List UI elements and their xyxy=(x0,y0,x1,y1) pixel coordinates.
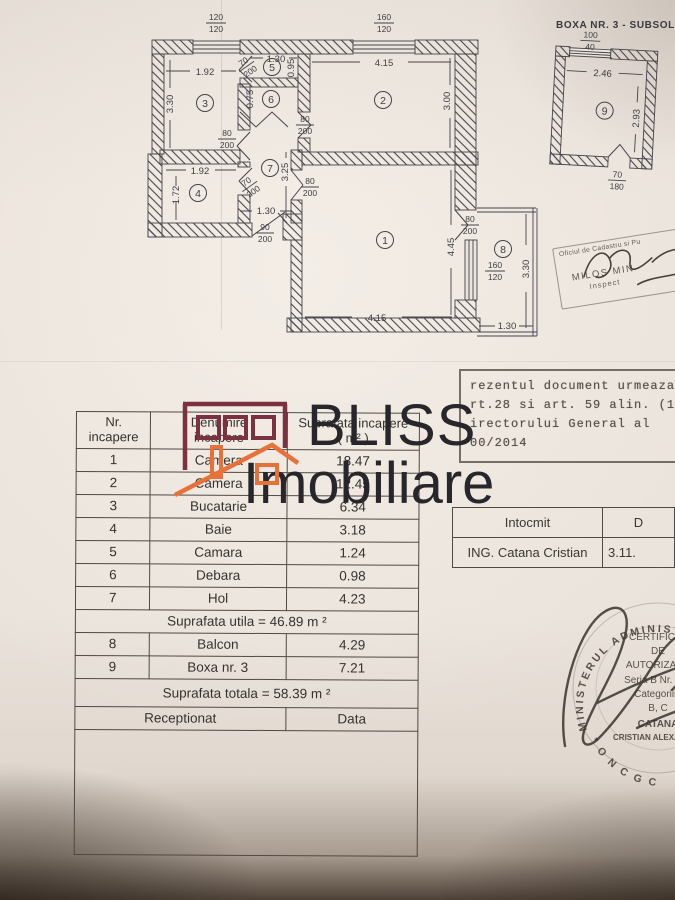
wall-segment xyxy=(291,200,302,223)
wall-segment xyxy=(160,150,240,164)
dim-balcony-height: 3.30 xyxy=(521,260,532,279)
data-cell: Data xyxy=(286,708,418,732)
cell-area: 12.45 xyxy=(287,473,419,497)
wall-segment xyxy=(550,56,566,164)
stamp-certificat: CERTIFICAT xyxy=(629,632,675,643)
svg-text:4: 4 xyxy=(195,188,201,200)
svg-text:80: 80 xyxy=(305,176,315,186)
boxa-unit: 10040 2.46 2.93 9 70180 xyxy=(549,28,659,193)
floor-plan-drawing: 1.92 3.30 1.30 0.95 0.75 4.15 3.00 1.92 … xyxy=(0,0,675,365)
dim-boxa-width: 2.46 xyxy=(593,68,612,80)
dim-room2-height: 3.00 xyxy=(442,92,453,111)
wall-segment xyxy=(415,40,478,54)
wall-segment xyxy=(550,154,608,167)
intocmit-header-row: Intocmit D xyxy=(453,508,675,538)
wall-segment xyxy=(291,150,302,170)
receptionat-cell: Receptionat xyxy=(75,706,286,730)
cell-nr: 4 xyxy=(76,518,151,541)
svg-text:90: 90 xyxy=(260,222,270,232)
reception-row: Receptionat Data xyxy=(75,706,418,731)
dim-room2-width: 4.15 xyxy=(375,58,394,69)
cell-name: Baie xyxy=(150,518,286,542)
svg-text:80: 80 xyxy=(465,214,475,224)
stamp-seria: Seria B Nr. 685 xyxy=(624,675,675,686)
wall-segment xyxy=(148,223,252,237)
window xyxy=(465,240,477,300)
cell-nr: 2 xyxy=(76,472,151,495)
svg-text:7: 7 xyxy=(267,163,273,175)
table-row: 8Balcon4.29 xyxy=(75,632,418,657)
svg-text:40: 40 xyxy=(585,42,595,52)
cell-area: 0.98 xyxy=(286,565,418,589)
wall-segment xyxy=(455,300,476,318)
typed-line3: irectorului General al xyxy=(470,415,675,434)
svg-text:5: 5 xyxy=(269,62,275,74)
svg-text:160: 160 xyxy=(377,12,391,22)
window xyxy=(353,41,415,53)
door-size-label: 90200 xyxy=(256,222,274,244)
window xyxy=(193,41,240,53)
dimension-lines xyxy=(166,58,533,328)
wall-segment xyxy=(455,54,476,165)
dim-boxa-height: 2.93 xyxy=(631,109,643,128)
cell-area: 6.34 xyxy=(287,496,419,520)
cell-area: 4.23 xyxy=(286,588,418,612)
intocmit-label: Intocmit xyxy=(453,508,603,538)
cell-nr: 3 xyxy=(76,495,151,518)
wall-segment xyxy=(152,54,164,154)
typed-line1: rezentul document urmeaza xyxy=(470,377,675,396)
door-size-label: 80200 xyxy=(296,114,314,136)
svg-text:80: 80 xyxy=(300,114,310,124)
svg-text:2: 2 xyxy=(380,95,386,107)
svg-text:120: 120 xyxy=(377,24,391,34)
total-row: Suprafata totala = 58.39 m ² xyxy=(75,678,418,708)
cell-nr: 9 xyxy=(75,655,150,678)
svg-text:1: 1 xyxy=(382,235,388,247)
cell-nr: 8 xyxy=(75,632,150,655)
dim-room3-width: 1.92 xyxy=(196,67,215,78)
door-size-label: 70180 xyxy=(607,169,626,192)
empty-cell xyxy=(74,729,418,856)
stamp-ring-bottom-text: * O N C G C xyxy=(588,736,659,789)
wall-segment xyxy=(302,152,478,165)
cell-name: Camara xyxy=(150,541,286,565)
stamp-categoriile: Categoriile xyxy=(634,689,675,700)
table-row: 4Baie3.18 xyxy=(76,518,419,543)
door-size-label: 80200 xyxy=(461,214,479,236)
header-suprafata: Suprafata incapere( m² ) xyxy=(287,413,420,451)
table-row: 6Debara0.98 xyxy=(76,564,419,589)
windows xyxy=(193,41,477,300)
cell-nr: 5 xyxy=(76,541,151,564)
scanned-document-page: 1.92 3.30 1.30 0.95 0.75 4.15 3.00 1.92 … xyxy=(0,0,675,900)
wall-segment xyxy=(610,49,657,61)
empty-signature-area xyxy=(74,729,418,856)
table-row: 3Bucatarie6.34 xyxy=(76,495,419,520)
svg-text:200: 200 xyxy=(258,234,272,244)
certification-round-stamp: MINISTERUL ADMINISTRATIEI * O N C G C CE… xyxy=(535,578,675,803)
door-size-label: 80200 xyxy=(218,128,236,150)
svg-text:3: 3 xyxy=(202,98,208,110)
svg-text:120: 120 xyxy=(209,24,223,34)
svg-text:200: 200 xyxy=(298,126,312,136)
boxa-title: BOXA NR. 3 - SUBSOL xyxy=(556,20,675,31)
cell-name: Bucatarie xyxy=(150,495,286,519)
wall-segment xyxy=(240,40,353,54)
table-row: 9Boxa nr. 37.21 xyxy=(75,655,418,680)
wall-segment xyxy=(555,46,570,57)
svg-text:120: 120 xyxy=(209,12,223,22)
typed-line2: rt.28 si art. 59 alin. (1) xyxy=(470,396,675,415)
svg-text:160: 160 xyxy=(488,260,502,270)
cell-name: Camera xyxy=(151,449,287,473)
intocmit-table: Intocmit D ING. Catana Cristian 3.11. xyxy=(452,507,675,568)
wall-segment xyxy=(238,195,250,223)
wall-segment xyxy=(298,54,310,112)
cell-name: Debara xyxy=(150,564,286,588)
cell-name: Camera xyxy=(151,472,287,496)
door-room1 xyxy=(291,170,303,200)
typed-line4: 00/2014 xyxy=(470,434,675,453)
dim-room5-height: 0.95 xyxy=(286,59,297,78)
apartment-walls xyxy=(148,40,480,332)
window-size-label: 160120 xyxy=(374,12,394,34)
stamp-cristian-alexandru: CRISTIAN ALEXANDRU xyxy=(613,733,675,742)
wall-segment xyxy=(238,162,250,167)
intocmit-date: 3.11. xyxy=(602,538,674,568)
cell-nr: 6 xyxy=(76,564,151,587)
subtotal-utila: Suprafata utila = 46.89 m ² xyxy=(75,609,418,634)
table-header-row: Nr.incapere Denumireincapere Suprafata i… xyxy=(76,412,419,451)
engineer-name: ING. Catana Cristian xyxy=(453,538,603,568)
door-boxa xyxy=(608,144,631,158)
cell-name: Boxa nr. 3 xyxy=(150,656,286,680)
svg-text:6: 6 xyxy=(268,94,274,106)
table-row: 2Camera12.45 xyxy=(76,472,419,497)
cell-nr: 1 xyxy=(76,449,151,472)
cell-area: 18.47 xyxy=(287,450,419,474)
table-row: 7Hol4.23 xyxy=(75,587,418,612)
door-size-label: 70200 xyxy=(233,52,260,80)
window-size-label: 160120 xyxy=(485,260,505,282)
table-row: 5Camara1.24 xyxy=(76,541,419,566)
svg-text:180: 180 xyxy=(609,181,624,192)
wall-segment xyxy=(152,40,193,54)
svg-text:80: 80 xyxy=(222,128,232,138)
door-size-label: 80200 xyxy=(301,176,319,198)
cell-nr: 7 xyxy=(75,587,150,610)
svg-text:8: 8 xyxy=(500,244,506,256)
dim-room4-width: 1.92 xyxy=(191,166,210,177)
typed-annotation-stamp: rezentul document urmeaza rt.28 si art. … xyxy=(459,369,675,463)
svg-text:200: 200 xyxy=(303,188,317,198)
cell-area: 3.18 xyxy=(286,519,418,543)
dim-room4-height: 1.72 xyxy=(171,186,182,205)
header-denumire: Denumireincapere xyxy=(151,412,287,450)
svg-text:9: 9 xyxy=(601,105,608,117)
cell-area: 7.21 xyxy=(286,657,418,681)
cell-area: 4.29 xyxy=(286,634,418,658)
stamp-bc: B, C xyxy=(648,703,667,714)
data-column-label: D xyxy=(602,508,674,538)
total-suprafata: Suprafata totala = 58.39 m ² xyxy=(75,678,418,708)
cell-area: 1.24 xyxy=(286,542,418,566)
dim-room3-height: 3.30 xyxy=(165,95,176,114)
header-nr-incapere: Nr.incapere xyxy=(76,412,151,449)
svg-text:120: 120 xyxy=(488,272,502,282)
svg-text:100: 100 xyxy=(583,29,598,40)
dim-room1-height: 4.45 xyxy=(446,238,457,257)
intocmit-value-row: ING. Catana Cristian 3.11. xyxy=(453,538,675,568)
wall-segment xyxy=(642,61,658,169)
dim-hall-height: 3.25 xyxy=(280,163,291,182)
cell-name: Balcon xyxy=(150,633,286,657)
svg-text:200: 200 xyxy=(220,140,234,150)
table-row: 1Camera18.47 xyxy=(76,449,419,474)
svg-text:200: 200 xyxy=(463,226,477,236)
dim-room1-width: 4.15 xyxy=(368,313,387,324)
dim-entrance-width: 1.30 xyxy=(257,206,276,217)
wall-segment xyxy=(630,158,652,169)
subtotal-row: Suprafata utila = 46.89 m ² xyxy=(75,609,418,634)
dim-balcony-width: 1.30 xyxy=(498,321,517,332)
window-size-label: 120120 xyxy=(206,12,226,34)
cell-name: Hol xyxy=(150,587,286,611)
dim-room6-height: 0.75 xyxy=(245,90,256,109)
room-areas-table: Nr.incapere Denumireincapere Suprafata i… xyxy=(74,411,420,857)
wall-segment xyxy=(455,165,476,210)
svg-text:70: 70 xyxy=(612,169,622,179)
